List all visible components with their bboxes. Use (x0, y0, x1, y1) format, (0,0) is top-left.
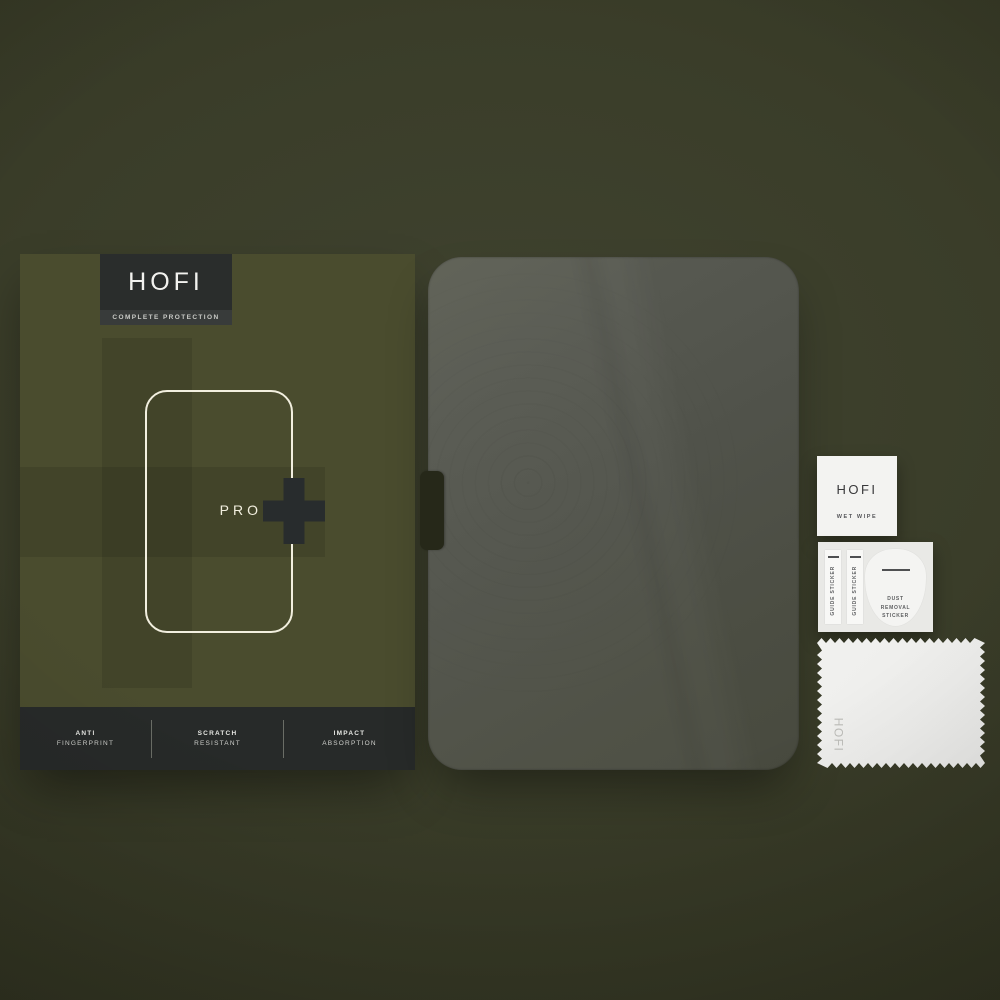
plus-icon-horizontal-bar (263, 501, 325, 522)
brand-tagline: COMPLETE PROTECTION (100, 310, 232, 325)
feature-anti-fingerprint: ANTI FINGERPRINT (20, 729, 151, 749)
hofi-logo: HOFI (100, 254, 232, 310)
hofi-logo: HOFI (836, 482, 877, 497)
dust-removal-sticker: DUST REMOVAL STICKER (865, 549, 926, 626)
product-photo-hofi-screen-protector: HOFI COMPLETE PROTECTION PRO ANTI FINGER… (0, 0, 1000, 1000)
retail-box: HOFI COMPLETE PROTECTION PRO ANTI FINGER… (20, 254, 415, 770)
hofi-logo: HOFI (831, 718, 845, 753)
series-label: PRO (180, 502, 262, 518)
guide-sticker-1: GUIDE STICKER (825, 550, 841, 624)
feature-scratch-resistant: SCRATCH RESISTANT (152, 729, 283, 749)
sticker-sheet: GUIDE STICKER GUIDE STICKER DUST REMOVAL… (818, 542, 933, 632)
sticker-pull-mark (828, 556, 839, 558)
sticker-pull-mark (850, 556, 861, 558)
camera-cutout-notch (420, 471, 444, 550)
plus-icon (263, 478, 325, 544)
glass-screen-protector (428, 257, 799, 770)
guide-sticker-2: GUIDE STICKER (847, 550, 863, 624)
wet-wipe-label: WET WIPE (837, 514, 878, 520)
glass-interference-rings (428, 257, 799, 770)
feature-bar: ANTI FINGERPRINT SCRATCH RESISTANT IMPAC… (20, 707, 415, 770)
brand-badge: HOFI COMPLETE PROTECTION (100, 254, 232, 325)
wet-wipe-sachet: HOFI WET WIPE (817, 456, 897, 536)
sticker-pull-mark (882, 569, 910, 571)
glass-reflection-streak (428, 257, 799, 770)
feature-impact-absorption: IMPACT ABSORPTION (284, 729, 415, 749)
microfiber-cloth: HOFI (817, 638, 985, 768)
